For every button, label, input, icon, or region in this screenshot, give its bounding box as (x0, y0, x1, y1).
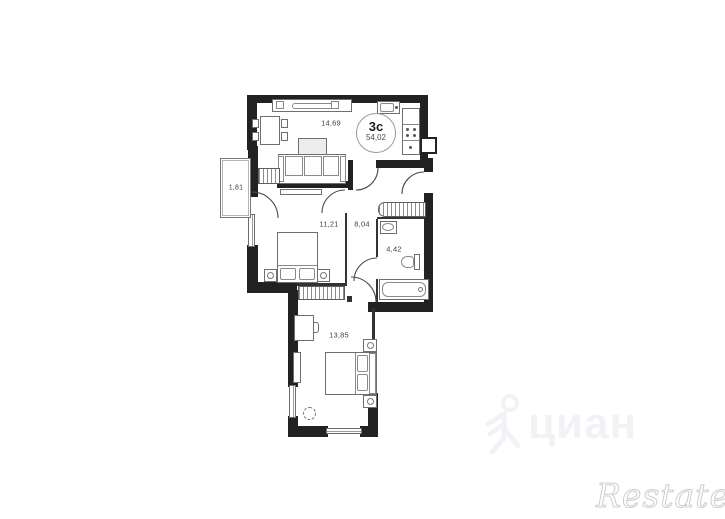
bed2-headboard (369, 353, 376, 394)
lamp-bed2-top (367, 342, 374, 349)
cian-watermark-text: циан (528, 394, 637, 454)
burner-3 (406, 134, 409, 137)
wall-bathroom-left-a (376, 219, 378, 257)
desk-bedroom2 (294, 315, 314, 341)
wall-bathroom-left-b (376, 279, 378, 302)
door-arc-bathroom (354, 258, 377, 281)
wall-hall-bedroom2-stub (347, 296, 352, 302)
kitchen-faucet (395, 106, 398, 109)
wall-hall-top (376, 160, 426, 168)
floorplan-screenshot: 14,69 1,81 11,21 8,04 4,42 13,85 3с 54,0… (0, 0, 725, 519)
area-label-living-kitchen: 14,69 (321, 119, 341, 128)
bed1-blanket-line (278, 265, 317, 266)
toilet-bowl (401, 256, 414, 268)
stove-divider1 (403, 124, 419, 125)
wall-bottom-a (296, 426, 328, 437)
floor-plant (303, 407, 316, 420)
door-arc-bedroom1 (322, 190, 345, 213)
burner-1 (406, 128, 409, 131)
bathroom-sink-basin (382, 223, 394, 231)
sofa-cushion-2 (304, 156, 322, 176)
kitchen-cabinet-left (276, 101, 284, 109)
dining-chair-1 (252, 119, 259, 128)
sofa-cushion-3 (323, 156, 339, 176)
bed2-pillow-top (357, 355, 368, 372)
lamp-bed1-left (267, 272, 274, 279)
apartment-type-label: 3с (357, 120, 395, 133)
oven-knob (409, 146, 412, 149)
cian-watermark: циан (480, 394, 637, 456)
door-arc-living-hall (356, 168, 378, 190)
area-label-balcony: 1,81 (229, 185, 243, 192)
kitchen-cabinet-right (331, 101, 339, 109)
lamp-bed1-right (320, 272, 327, 279)
dining-chair-2 (252, 132, 259, 141)
bed2-blanket-line (355, 353, 356, 394)
desk-chair-bedroom2 (313, 322, 319, 333)
wall-bedroom1-hall (345, 213, 347, 285)
dining-chair-3 (281, 119, 288, 128)
dining-chair-4 (281, 132, 288, 141)
bed1-pillow-right (299, 268, 315, 280)
sofa-cushion-1 (285, 156, 303, 176)
ventilation-shaft (420, 137, 437, 154)
dining-table (260, 116, 280, 145)
bed1-pillow-left (280, 268, 296, 280)
closet-bedroom2 (298, 286, 345, 300)
restate-watermark: Restate (596, 476, 725, 515)
tv-console-bedroom1 (280, 189, 322, 195)
apartment-type-badge: 3с 54,02 (356, 113, 396, 153)
burner-2 (413, 128, 416, 131)
wall-bathroom-top (377, 217, 425, 219)
door-arc-bedroom2 (351, 277, 376, 302)
area-label-hallway: 8,04 (354, 220, 369, 229)
wall-right-top (420, 95, 428, 139)
stove-divider2 (403, 140, 419, 141)
toilet-tank (414, 254, 420, 270)
bed2-pillow-bottom (357, 374, 368, 391)
apartment-total-area: 54,02 (357, 133, 395, 142)
wardrobe-hallway (378, 202, 426, 217)
sofa-armrest-right (340, 156, 346, 182)
shelf-bedroom2 (293, 352, 301, 383)
area-label-bathroom: 4,42 (386, 245, 401, 254)
cian-person-icon (480, 394, 528, 456)
burner-4 (413, 134, 416, 137)
window-bedroom1-left (248, 214, 255, 247)
dresser-bedroom1 (258, 168, 280, 184)
window-bedroom2-bottom (326, 428, 362, 434)
area-label-bedroom1: 11,21 (319, 220, 338, 229)
lamp-bed2-bottom (367, 398, 374, 405)
bathtub-drain (418, 287, 423, 292)
door-arc-entry (402, 172, 424, 194)
area-label-bedroom2: 13,85 (329, 331, 349, 340)
window-bedroom2-left (289, 385, 296, 418)
kitchen-sink-basin (380, 103, 394, 112)
